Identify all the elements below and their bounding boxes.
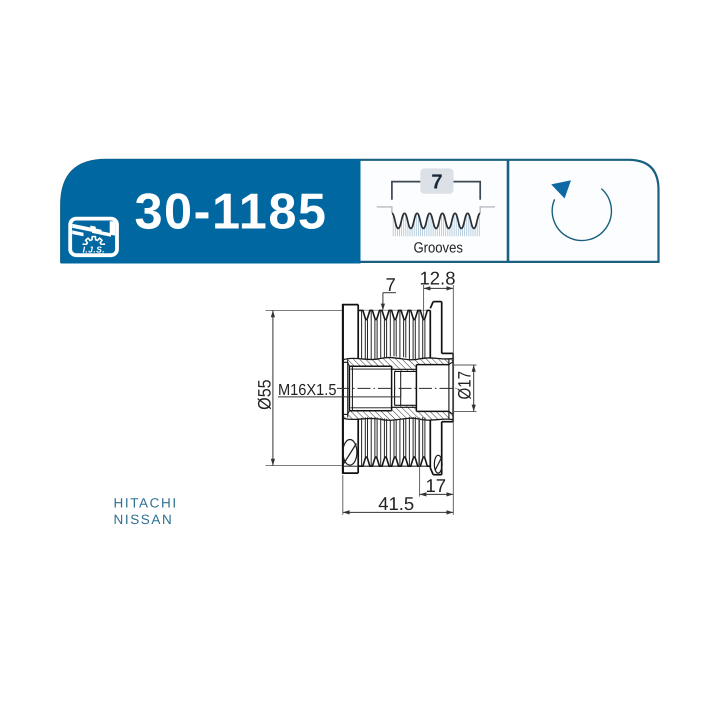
svg-text:Ø17: Ø17 xyxy=(454,371,474,400)
svg-text:12.8: 12.8 xyxy=(419,267,455,288)
svg-text:7: 7 xyxy=(385,274,395,295)
svg-text:17: 17 xyxy=(426,475,447,496)
svg-text:NISSAN: NISSAN xyxy=(114,512,174,527)
svg-text:30-1185: 30-1185 xyxy=(134,183,327,240)
svg-text:HITACHI: HITACHI xyxy=(114,495,178,510)
svg-text:41.5: 41.5 xyxy=(378,493,414,514)
svg-text:Grooves: Grooves xyxy=(413,240,463,256)
svg-text:I.J.S.: I.J.S. xyxy=(83,244,105,254)
svg-text:7: 7 xyxy=(431,171,442,194)
svg-text:Ø55: Ø55 xyxy=(255,379,275,410)
